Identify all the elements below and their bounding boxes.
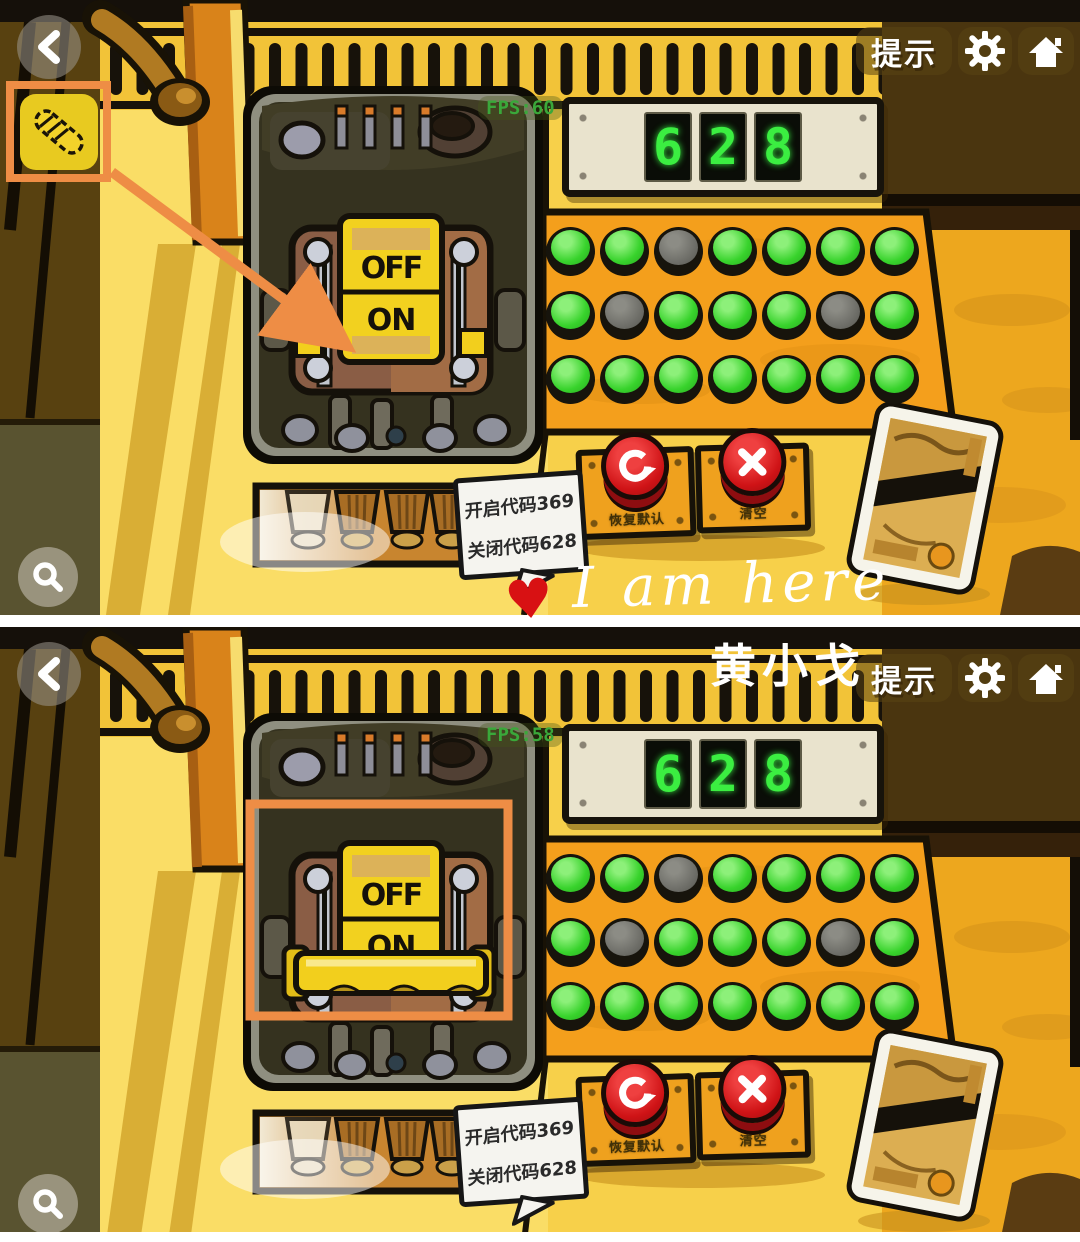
home-button[interactable] bbox=[1018, 654, 1074, 702]
code-digits: 628 bbox=[644, 739, 802, 809]
panel-push-button-green[interactable] bbox=[816, 355, 865, 404]
panel-push-button-green[interactable] bbox=[870, 355, 919, 404]
panel-push-button-green[interactable] bbox=[546, 227, 595, 276]
panel-push-button-gray[interactable] bbox=[600, 918, 649, 967]
settings-button[interactable] bbox=[958, 27, 1012, 75]
clear-button-plate[interactable]: 清空 bbox=[695, 443, 811, 534]
panel-push-button-green[interactable] bbox=[870, 918, 919, 967]
panel-push-button-green[interactable] bbox=[816, 854, 865, 903]
code-digits: 628 bbox=[644, 112, 802, 182]
panel-push-button-green[interactable] bbox=[816, 982, 865, 1031]
panel-push-button-green[interactable] bbox=[654, 918, 703, 967]
fps-counter: FPS:60 bbox=[478, 96, 563, 120]
panel-push-button-green[interactable] bbox=[600, 227, 649, 276]
gear-icon bbox=[965, 658, 1005, 698]
panel-push-button-gray[interactable] bbox=[816, 918, 865, 967]
home-button[interactable] bbox=[1018, 27, 1074, 75]
bottom-border bbox=[0, 1232, 1080, 1242]
back-button[interactable] bbox=[17, 642, 81, 706]
reset-icon bbox=[613, 1071, 656, 1114]
hint-button[interactable]: 提示 bbox=[856, 654, 952, 702]
note-tail bbox=[510, 1193, 556, 1226]
panel-push-button-green[interactable] bbox=[600, 982, 649, 1031]
walkthrough-screenshot: OFF ON bbox=[0, 0, 1080, 1242]
game-panel-bottom: FPS:58 628 恢复默认 清空 开启代码369 关闭 bbox=[0, 627, 1080, 1242]
display-digit: 2 bbox=[699, 739, 747, 809]
heart-doodle: ♥ bbox=[502, 566, 557, 634]
panel-push-button-green[interactable] bbox=[816, 227, 865, 276]
panel-push-button-green[interactable] bbox=[762, 854, 811, 903]
settings-button[interactable] bbox=[958, 654, 1012, 702]
panel-push-button-green[interactable] bbox=[708, 918, 757, 967]
code-note[interactable]: 开启代码369 关闭代码628 bbox=[453, 470, 590, 581]
panel-push-button-green[interactable] bbox=[654, 291, 703, 340]
panel-push-button-gray[interactable] bbox=[654, 854, 703, 903]
clear-label: 清空 bbox=[702, 1129, 804, 1151]
display-digit: 8 bbox=[754, 739, 802, 809]
back-icon bbox=[31, 654, 67, 694]
panel-push-button-green[interactable] bbox=[600, 854, 649, 903]
reset-button-plate[interactable]: 恢复默认 bbox=[575, 1073, 696, 1167]
reset-label: 恢复默认 bbox=[584, 1134, 691, 1157]
panel-push-button-green[interactable] bbox=[546, 918, 595, 967]
panel-push-button-gray[interactable] bbox=[654, 227, 703, 276]
panel-push-button-green[interactable] bbox=[654, 355, 703, 404]
game-panel-top: OFF ON bbox=[0, 0, 1080, 615]
magnifier-icon bbox=[30, 1186, 66, 1222]
panel-push-button-green[interactable] bbox=[870, 982, 919, 1031]
note-close-code: 关闭代码628 bbox=[467, 526, 577, 563]
reset-button-plate[interactable]: 恢复默认 bbox=[575, 446, 696, 540]
gear-icon bbox=[965, 31, 1005, 71]
display-digit: 6 bbox=[644, 112, 692, 182]
panel-push-button-green[interactable] bbox=[762, 982, 811, 1031]
panel-push-button-green[interactable] bbox=[546, 854, 595, 903]
clear-button[interactable] bbox=[717, 427, 787, 497]
code-display: 628 bbox=[562, 97, 884, 197]
panel-push-button-green[interactable] bbox=[870, 291, 919, 340]
panel-push-button-green[interactable] bbox=[762, 291, 811, 340]
push-button-grid bbox=[546, 227, 919, 419]
panel-push-button-green[interactable] bbox=[546, 355, 595, 404]
panel-push-button-green[interactable] bbox=[870, 854, 919, 903]
panel-push-button-green[interactable] bbox=[708, 291, 757, 340]
back-icon bbox=[31, 27, 67, 67]
panel-push-button-green[interactable] bbox=[546, 291, 595, 340]
home-icon bbox=[1025, 659, 1067, 697]
panel-push-button-green[interactable] bbox=[708, 854, 757, 903]
code-note[interactable]: 开启代码369 关闭代码628 bbox=[453, 1097, 590, 1208]
panel-push-button-gray[interactable] bbox=[600, 291, 649, 340]
panel-push-button-green[interactable] bbox=[762, 227, 811, 276]
display-digit: 8 bbox=[754, 112, 802, 182]
panel-push-button-gray[interactable] bbox=[816, 291, 865, 340]
panel-push-button-green[interactable] bbox=[600, 355, 649, 404]
clear-label: 清空 bbox=[702, 502, 804, 524]
note-open-code: 开启代码369 bbox=[465, 1114, 575, 1151]
panel-push-button-green[interactable] bbox=[708, 227, 757, 276]
panel-push-button-green[interactable] bbox=[708, 355, 757, 404]
cross-icon bbox=[733, 1070, 772, 1109]
note-close-code: 关闭代码628 bbox=[467, 1153, 577, 1190]
note-open-code: 开启代码369 bbox=[465, 487, 575, 524]
clear-button[interactable] bbox=[717, 1054, 787, 1124]
magnifier-button[interactable] bbox=[18, 547, 78, 607]
fps-counter: FPS:58 bbox=[478, 723, 563, 747]
back-button[interactable] bbox=[17, 15, 81, 79]
code-display: 628 bbox=[562, 724, 884, 824]
magnifier-button[interactable] bbox=[18, 1174, 78, 1234]
panel-push-button-green[interactable] bbox=[708, 982, 757, 1031]
author-watermark: 黄小戈 bbox=[710, 630, 866, 696]
panel-push-button-green[interactable] bbox=[762, 355, 811, 404]
panel-push-button-green[interactable] bbox=[654, 982, 703, 1031]
magnifier-icon bbox=[30, 559, 66, 595]
panel-push-button-green[interactable] bbox=[870, 227, 919, 276]
push-button-grid bbox=[546, 854, 919, 1046]
reset-label: 恢复默认 bbox=[584, 507, 691, 530]
reset-icon bbox=[613, 444, 656, 487]
home-icon bbox=[1025, 32, 1067, 70]
cross-icon bbox=[733, 443, 772, 482]
panel-push-button-green[interactable] bbox=[546, 982, 595, 1031]
panel-push-button-green[interactable] bbox=[762, 918, 811, 967]
display-digit: 2 bbox=[699, 112, 747, 182]
hint-button[interactable]: 提示 bbox=[856, 27, 952, 75]
clear-button-plate[interactable]: 清空 bbox=[695, 1070, 811, 1161]
handwritten-watermark: I am here bbox=[571, 548, 891, 621]
display-digit: 6 bbox=[644, 739, 692, 809]
